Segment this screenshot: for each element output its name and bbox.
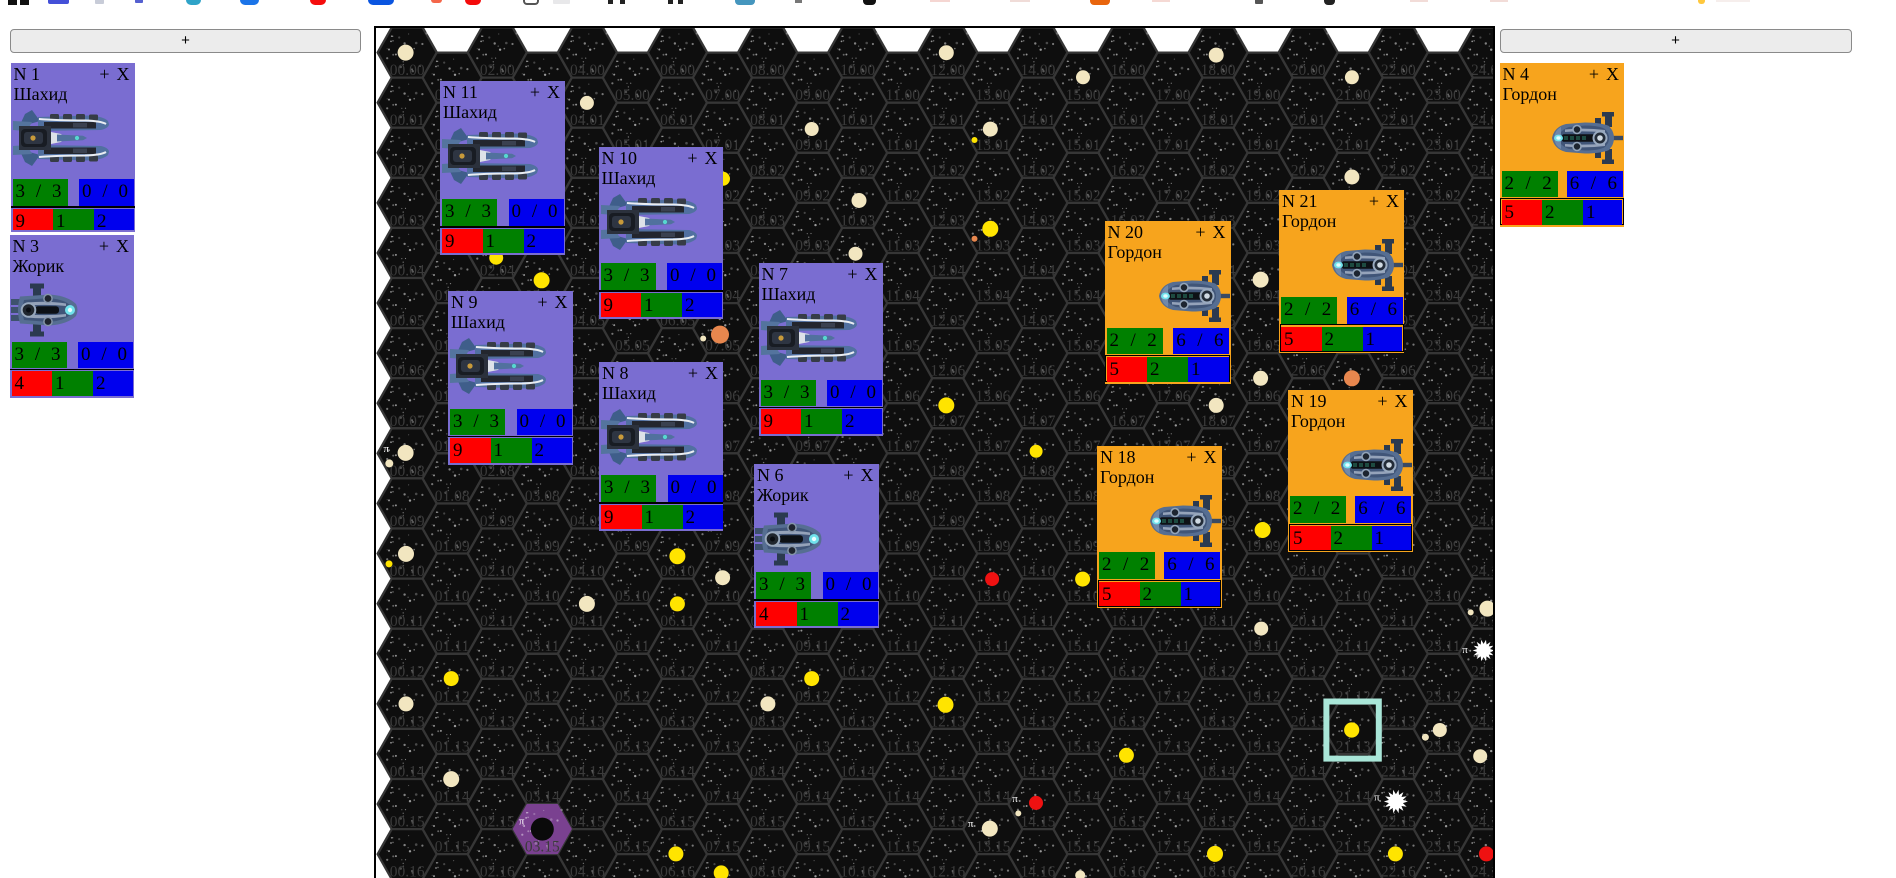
svg-text:07.14: 07.14 <box>705 789 740 806</box>
svg-text:15.14: 15.14 <box>1066 789 1101 806</box>
svg-text:14.13: 14.13 <box>1020 713 1055 730</box>
svg-text:14.02: 14.02 <box>1020 162 1055 179</box>
svg-text:15.03: 15.03 <box>1066 238 1101 255</box>
svg-text:05.10: 05.10 <box>615 588 650 605</box>
svg-text:03.15: 03.15 <box>525 839 560 856</box>
svg-text:24.00: 24.00 <box>1471 62 1493 79</box>
svg-text:07.15: 07.15 <box>705 839 740 856</box>
svg-text:19.10: 19.10 <box>1246 588 1281 605</box>
svg-text:12.13: 12.13 <box>930 713 965 730</box>
svg-text:14.15: 14.15 <box>1020 814 1055 831</box>
svg-text:24.13: 24.13 <box>1471 713 1493 730</box>
svg-text:16.13: 16.13 <box>1111 713 1146 730</box>
svg-text:13.06: 13.06 <box>975 388 1010 405</box>
svg-text:06.14: 06.14 <box>660 764 695 781</box>
svg-text:10.15: 10.15 <box>840 814 875 831</box>
svg-text:16.07: 16.07 <box>1111 413 1146 430</box>
svg-text:18.00: 18.00 <box>1201 62 1236 79</box>
svg-text:21.13: 21.13 <box>1336 739 1371 756</box>
svg-text:23.13: 23.13 <box>1426 739 1461 756</box>
svg-text:16.11: 16.11 <box>1111 613 1145 630</box>
svg-text:13.08: 13.08 <box>975 488 1010 505</box>
svg-text:15.06: 15.06 <box>1066 388 1101 405</box>
svg-text:13.05: 13.05 <box>975 338 1010 355</box>
svg-text:06.00: 06.00 <box>660 62 695 79</box>
svg-text:15.01: 15.01 <box>1066 137 1101 154</box>
svg-text:04.00: 04.00 <box>570 62 605 79</box>
svg-text:14.16: 14.16 <box>1020 864 1055 878</box>
svg-text:11.00: 11.00 <box>886 87 921 104</box>
svg-text:17.00: 17.00 <box>1156 87 1191 104</box>
svg-text:18.11: 18.11 <box>1201 613 1235 630</box>
svg-text:11.09: 11.09 <box>886 538 921 555</box>
svg-text:24.16: 24.16 <box>1471 864 1493 878</box>
svg-text:13.02: 13.02 <box>975 187 1010 204</box>
svg-text:18.16: 18.16 <box>1201 864 1236 878</box>
svg-text:22.11: 22.11 <box>1381 613 1415 630</box>
svg-text:12.00: 12.00 <box>930 62 965 79</box>
svg-text:10.00: 10.00 <box>840 62 875 79</box>
svg-text:11.11: 11.11 <box>886 638 920 655</box>
svg-text:09.11: 09.11 <box>796 638 830 655</box>
svg-text:11.14: 11.14 <box>886 789 921 806</box>
svg-text:15.02: 15.02 <box>1066 187 1101 204</box>
svg-text:19.00: 19.00 <box>1246 87 1281 104</box>
svg-text:17.02: 17.02 <box>1156 187 1191 204</box>
svg-text:03.13: 03.13 <box>525 739 560 756</box>
svg-text:11.12: 11.12 <box>886 688 920 705</box>
svg-text:02.00: 02.00 <box>480 62 515 79</box>
svg-text:08.12: 08.12 <box>750 663 785 680</box>
svg-text:00.02: 00.02 <box>390 162 425 179</box>
svg-text:10.16: 10.16 <box>840 864 875 878</box>
svg-text:24.08: 24.08 <box>1471 463 1493 480</box>
svg-text:15.08: 15.08 <box>1066 488 1101 505</box>
svg-text:03.08: 03.08 <box>525 488 560 505</box>
svg-text:21.14: 21.14 <box>1336 789 1371 806</box>
svg-text:05.13: 05.13 <box>615 739 650 756</box>
svg-text:12.12: 12.12 <box>930 663 965 680</box>
svg-text:23.08: 23.08 <box>1426 488 1461 505</box>
svg-text:09.03: 09.03 <box>795 238 830 255</box>
svg-text:01.08: 01.08 <box>435 488 470 505</box>
svg-text:12.10: 12.10 <box>930 563 965 580</box>
svg-text:π: π <box>1374 792 1380 804</box>
svg-text:02.04: 02.04 <box>480 263 515 280</box>
svg-text:16.02: 16.02 <box>1111 162 1146 179</box>
svg-text:14.10: 14.10 <box>1020 563 1055 580</box>
svg-text:06.15: 06.15 <box>660 814 695 831</box>
svg-text:18.14: 18.14 <box>1201 764 1236 781</box>
svg-text:09.00: 09.00 <box>795 87 830 104</box>
svg-text:13.09: 13.09 <box>975 538 1010 555</box>
svg-text:01.10: 01.10 <box>435 588 470 605</box>
svg-text:16.14: 16.14 <box>1111 764 1146 781</box>
svg-text:19.06: 19.06 <box>1246 388 1281 405</box>
svg-text:23.04: 23.04 <box>1426 288 1461 305</box>
svg-text:00.03: 00.03 <box>390 212 425 229</box>
svg-text:00.11: 00.11 <box>390 613 424 630</box>
svg-text:20.11: 20.11 <box>1291 613 1325 630</box>
svg-text:00.04: 00.04 <box>390 263 425 280</box>
svg-text:23.03: 23.03 <box>1426 238 1461 255</box>
svg-text:19.05: 19.05 <box>1246 338 1281 355</box>
svg-text:23.12: 23.12 <box>1426 688 1461 705</box>
svg-text:04.11: 04.11 <box>570 613 604 630</box>
svg-text:00.12: 00.12 <box>390 663 425 680</box>
svg-text:21.01: 21.01 <box>1336 137 1371 154</box>
svg-text:14.14: 14.14 <box>1020 764 1055 781</box>
svg-text:15.00: 15.00 <box>1066 87 1101 104</box>
svg-text:09.07: 09.07 <box>795 438 830 455</box>
svg-text:15.07: 15.07 <box>1066 438 1101 455</box>
svg-text:11.13: 11.13 <box>886 739 921 756</box>
svg-text:04.01: 04.01 <box>570 112 605 129</box>
svg-text:23.06: 23.06 <box>1426 388 1461 405</box>
svg-text:02.14: 02.14 <box>480 764 515 781</box>
svg-text:π: π <box>384 443 390 455</box>
svg-text:21.11: 21.11 <box>1336 638 1370 655</box>
svg-text:11.04: 11.04 <box>886 288 921 305</box>
svg-text:π: π <box>519 816 525 828</box>
svg-text:14.09: 14.09 <box>1020 513 1055 530</box>
svg-text:18.13: 18.13 <box>1201 713 1236 730</box>
svg-text:00.05: 00.05 <box>390 313 425 330</box>
svg-text:15.05: 15.05 <box>1066 338 1101 355</box>
svg-text:17.11: 17.11 <box>1156 638 1190 655</box>
svg-text:22.01: 22.01 <box>1381 112 1416 129</box>
svg-text:22.06: 22.06 <box>1381 363 1416 380</box>
svg-text:08.15: 08.15 <box>750 814 785 831</box>
svg-text:08.03: 08.03 <box>750 212 785 229</box>
svg-text:01.13: 01.13 <box>435 739 470 756</box>
svg-text:14.00: 14.00 <box>1020 62 1055 79</box>
svg-text:14.01: 14.01 <box>1020 112 1055 129</box>
svg-text:07.00: 07.00 <box>705 87 740 104</box>
svg-text:18.12: 18.12 <box>1201 663 1236 680</box>
svg-text:06.10: 06.10 <box>660 563 695 580</box>
svg-text:π: π <box>1462 644 1468 656</box>
svg-text:12.02: 12.02 <box>930 162 965 179</box>
svg-text:06.12: 06.12 <box>660 663 695 680</box>
svg-text:12.04: 12.04 <box>930 263 965 280</box>
svg-text:06.16: 06.16 <box>660 864 695 878</box>
svg-text:20.01: 20.01 <box>1291 112 1326 129</box>
svg-text:02.08: 02.08 <box>480 463 515 480</box>
svg-text:21.10: 21.10 <box>1336 588 1371 605</box>
svg-text:19.07: 19.07 <box>1246 438 1281 455</box>
svg-text:04.15: 04.15 <box>570 814 605 831</box>
svg-text:12.08: 12.08 <box>930 463 965 480</box>
svg-text:13.07: 13.07 <box>975 438 1010 455</box>
svg-text:19.01: 19.01 <box>1246 137 1281 154</box>
svg-text:19.08: 19.08 <box>1246 488 1281 505</box>
svg-text:14.11: 14.11 <box>1021 613 1055 630</box>
svg-text:01.09: 01.09 <box>435 538 470 555</box>
svg-text:22.10: 22.10 <box>1381 563 1416 580</box>
svg-text:01.15: 01.15 <box>435 839 470 856</box>
svg-text:19.03: 19.03 <box>1246 238 1281 255</box>
svg-text:05.14: 05.14 <box>615 789 650 806</box>
svg-text:24.02: 24.02 <box>1471 162 1493 179</box>
svg-text:10.12: 10.12 <box>840 663 875 680</box>
svg-text:20.16: 20.16 <box>1291 864 1326 878</box>
svg-text:04.13: 04.13 <box>570 713 605 730</box>
svg-text:14.05: 14.05 <box>1020 313 1055 330</box>
svg-text:11.06: 11.06 <box>886 388 921 405</box>
svg-text:02.16: 02.16 <box>480 864 515 878</box>
svg-text:17.01: 17.01 <box>1156 137 1191 154</box>
svg-text:24.15: 24.15 <box>1471 814 1493 831</box>
svg-text:08.13: 08.13 <box>750 713 785 730</box>
svg-text:00.06: 00.06 <box>390 363 425 380</box>
svg-text:24.06: 24.06 <box>1471 363 1493 380</box>
svg-text:23.05: 23.05 <box>1426 338 1461 355</box>
svg-text:24.14: 24.14 <box>1471 764 1493 781</box>
svg-text:23.01: 23.01 <box>1426 137 1461 154</box>
svg-text:23.02: 23.02 <box>1426 187 1461 204</box>
svg-text:24.03: 24.03 <box>1471 212 1493 229</box>
svg-text:13.00: 13.00 <box>975 87 1010 104</box>
svg-text:07.11: 07.11 <box>705 638 739 655</box>
svg-text:00.10: 00.10 <box>390 563 425 580</box>
svg-text:10.13: 10.13 <box>840 713 875 730</box>
svg-text:06.13: 06.13 <box>660 713 695 730</box>
svg-text:16.00: 16.00 <box>1111 62 1146 79</box>
svg-text:24.10: 24.10 <box>1471 563 1493 580</box>
svg-text:02.13: 02.13 <box>480 713 515 730</box>
svg-text:10.03: 10.03 <box>840 212 875 229</box>
svg-text:17.12: 17.12 <box>1156 688 1191 705</box>
svg-text:20.15: 20.15 <box>1291 814 1326 831</box>
svg-text:13.04: 13.04 <box>975 288 1010 305</box>
svg-text:20.02: 20.02 <box>1291 162 1326 179</box>
svg-text:12.01: 12.01 <box>930 112 965 129</box>
svg-text:19.12: 19.12 <box>1246 688 1281 705</box>
svg-text:13.12: 13.12 <box>975 688 1010 705</box>
svg-text:15.12: 15.12 <box>1066 688 1101 705</box>
svg-text:00.09: 00.09 <box>390 513 425 530</box>
svg-text:19.13: 19.13 <box>1246 739 1281 756</box>
svg-text:09.13: 09.13 <box>795 739 830 756</box>
svg-text:08.16: 08.16 <box>750 864 785 878</box>
svg-text:09.02: 09.02 <box>795 187 830 204</box>
svg-text:22.14: 22.14 <box>1381 764 1416 781</box>
svg-text:15.10: 15.10 <box>1066 588 1101 605</box>
svg-text:12.14: 12.14 <box>930 764 965 781</box>
svg-text:24.07: 24.07 <box>1471 413 1493 430</box>
svg-text:14.12: 14.12 <box>1020 663 1055 680</box>
svg-text:03.10: 03.10 <box>525 588 560 605</box>
svg-text:21.00: 21.00 <box>1336 87 1371 104</box>
svg-text:08.00: 08.00 <box>750 62 785 79</box>
svg-text:02.15: 02.15 <box>480 814 515 831</box>
svg-text:07.10: 07.10 <box>705 588 740 605</box>
svg-text:09.15: 09.15 <box>795 839 830 856</box>
svg-text:12.15: 12.15 <box>930 814 965 831</box>
svg-text:15.04: 15.04 <box>1066 288 1101 305</box>
svg-text:22.12: 22.12 <box>1381 663 1416 680</box>
svg-text:18.15: 18.15 <box>1201 814 1236 831</box>
svg-text:20.06: 20.06 <box>1291 363 1326 380</box>
svg-text:15.13: 15.13 <box>1066 739 1101 756</box>
svg-text:20.10: 20.10 <box>1291 563 1326 580</box>
svg-text:11.08: 11.08 <box>886 488 921 505</box>
svg-text:13.13: 13.13 <box>975 739 1010 756</box>
svg-text:18.02: 18.02 <box>1201 162 1236 179</box>
svg-text:11.10: 11.10 <box>886 588 921 605</box>
svg-text:24.04: 24.04 <box>1471 263 1493 280</box>
svg-text:14.03: 14.03 <box>1020 212 1055 229</box>
svg-text:17.06: 17.06 <box>1156 388 1191 405</box>
svg-text:07.12: 07.12 <box>705 688 740 705</box>
svg-text:09.12: 09.12 <box>795 688 830 705</box>
svg-text:14.06: 14.06 <box>1020 363 1055 380</box>
svg-text:13.03: 13.03 <box>975 238 1010 255</box>
svg-text:19.04: 19.04 <box>1246 288 1281 305</box>
svg-text:07.13: 07.13 <box>705 739 740 756</box>
svg-text:24.12: 24.12 <box>1471 663 1493 680</box>
svg-text:23.00: 23.00 <box>1426 87 1461 104</box>
svg-text:23.07: 23.07 <box>1426 438 1461 455</box>
svg-text:15.11: 15.11 <box>1066 638 1100 655</box>
svg-text:02.09: 02.09 <box>480 513 515 530</box>
svg-text:14.08: 14.08 <box>1020 463 1055 480</box>
svg-text:09.14: 09.14 <box>795 789 830 806</box>
svg-text:19.14: 19.14 <box>1246 789 1281 806</box>
svg-text:00.16: 00.16 <box>390 864 425 878</box>
svg-text:13.15: 13.15 <box>975 839 1010 856</box>
svg-text:08.02: 08.02 <box>750 162 785 179</box>
svg-text:π: π <box>1012 793 1018 805</box>
svg-text:22.00: 22.00 <box>1381 62 1416 79</box>
svg-text:17.13: 17.13 <box>1156 739 1191 756</box>
svg-text:01.11: 01.11 <box>435 638 469 655</box>
svg-text:π: π <box>968 818 974 830</box>
svg-text:00.14: 00.14 <box>390 764 425 781</box>
svg-text:06.11: 06.11 <box>660 613 694 630</box>
svg-text:20.14: 20.14 <box>1291 764 1326 781</box>
svg-text:19.09: 19.09 <box>1246 538 1281 555</box>
svg-text:12.05: 12.05 <box>930 313 965 330</box>
svg-text:22.16: 22.16 <box>1381 864 1416 878</box>
svg-text:22.15: 22.15 <box>1381 814 1416 831</box>
svg-text:12.16: 12.16 <box>930 864 965 878</box>
svg-text:19.15: 19.15 <box>1246 839 1281 856</box>
svg-text:14.04: 14.04 <box>1020 263 1055 280</box>
svg-text:01.12: 01.12 <box>435 688 470 705</box>
svg-text:10.14: 10.14 <box>840 764 875 781</box>
svg-text:21.15: 21.15 <box>1336 839 1371 856</box>
svg-text:15.09: 15.09 <box>1066 538 1101 555</box>
svg-text:23.11: 23.11 <box>1426 638 1460 655</box>
svg-text:24.05: 24.05 <box>1471 313 1493 330</box>
svg-text:23.09: 23.09 <box>1426 538 1461 555</box>
svg-text:15.15: 15.15 <box>1066 839 1101 856</box>
svg-text:16.12: 16.12 <box>1111 663 1146 680</box>
svg-text:22.13: 22.13 <box>1381 713 1416 730</box>
svg-text:19.11: 19.11 <box>1246 638 1280 655</box>
svg-text:11.03: 11.03 <box>886 238 921 255</box>
svg-text:00.08: 00.08 <box>390 463 425 480</box>
svg-text:03.09: 03.09 <box>525 538 560 555</box>
svg-text:05.00: 05.00 <box>615 87 650 104</box>
svg-text:11.02: 11.02 <box>886 187 920 204</box>
svg-text:09.01: 09.01 <box>795 137 830 154</box>
svg-text:00.15: 00.15 <box>390 814 425 831</box>
svg-text:24.01: 24.01 <box>1471 112 1493 129</box>
svg-text:11.15: 11.15 <box>886 839 921 856</box>
svg-text:04.14: 04.14 <box>570 764 605 781</box>
svg-text:05.12: 05.12 <box>615 688 650 705</box>
svg-text:05.05: 05.05 <box>615 338 650 355</box>
svg-text:12.03: 12.03 <box>930 212 965 229</box>
svg-text:10.02: 10.02 <box>840 162 875 179</box>
svg-text:03.12: 03.12 <box>525 688 560 705</box>
svg-text:20.12: 20.12 <box>1291 663 1326 680</box>
svg-text:13.01: 13.01 <box>975 137 1010 154</box>
svg-text:12.11: 12.11 <box>931 613 965 630</box>
svg-text:17.14: 17.14 <box>1156 789 1191 806</box>
svg-text:07.09: 07.09 <box>705 538 740 555</box>
svg-text:13.11: 13.11 <box>976 638 1010 655</box>
svg-text:16.01: 16.01 <box>1111 112 1146 129</box>
svg-text:23.10: 23.10 <box>1426 588 1461 605</box>
svg-text:11.07: 11.07 <box>886 438 921 455</box>
svg-text:19.02: 19.02 <box>1246 187 1281 204</box>
svg-text:01.14: 01.14 <box>435 789 470 806</box>
svg-text:00.13: 00.13 <box>390 713 425 730</box>
svg-text:23.14: 23.14 <box>1426 789 1461 806</box>
svg-text:02.12: 02.12 <box>480 663 515 680</box>
svg-text:11.01: 11.01 <box>886 137 920 154</box>
svg-text:22.02: 22.02 <box>1381 162 1416 179</box>
svg-text:16.16: 16.16 <box>1111 864 1146 878</box>
svg-text:05.11: 05.11 <box>615 638 649 655</box>
svg-text:08.01: 08.01 <box>750 112 785 129</box>
svg-text:00.07: 00.07 <box>390 413 425 430</box>
svg-text:04.12: 04.12 <box>570 663 605 680</box>
svg-text:02.11: 02.11 <box>480 613 514 630</box>
svg-text:00.01: 00.01 <box>390 112 425 129</box>
svg-text:18.07: 18.07 <box>1201 413 1236 430</box>
svg-text:16.15: 16.15 <box>1111 814 1146 831</box>
svg-text:13.10: 13.10 <box>975 588 1010 605</box>
svg-text:12.07: 12.07 <box>930 413 965 430</box>
svg-text:14.07: 14.07 <box>1020 413 1055 430</box>
svg-text:12.06: 12.06 <box>930 363 965 380</box>
svg-text:23.15: 23.15 <box>1426 839 1461 856</box>
svg-text:24.09: 24.09 <box>1471 513 1493 530</box>
svg-text:12.09: 12.09 <box>930 513 965 530</box>
svg-text:00.00: 00.00 <box>390 62 425 79</box>
svg-text:05.09: 05.09 <box>615 538 650 555</box>
svg-text:06.01: 06.01 <box>660 112 695 129</box>
svg-text:10.01: 10.01 <box>840 112 875 129</box>
svg-text:11.05: 11.05 <box>886 338 921 355</box>
svg-text:04.16: 04.16 <box>570 864 605 878</box>
svg-text:20.00: 20.00 <box>1291 62 1326 79</box>
svg-text:20.13: 20.13 <box>1291 713 1326 730</box>
svg-text:13.14: 13.14 <box>975 789 1010 806</box>
svg-text:03.14: 03.14 <box>525 789 560 806</box>
svg-text:02.10: 02.10 <box>480 563 515 580</box>
svg-text:17.15: 17.15 <box>1156 839 1191 856</box>
svg-text:18.01: 18.01 <box>1201 112 1236 129</box>
svg-text:04.10: 04.10 <box>570 563 605 580</box>
svg-text:05.15: 05.15 <box>615 839 650 856</box>
svg-text:03.11: 03.11 <box>525 638 559 655</box>
